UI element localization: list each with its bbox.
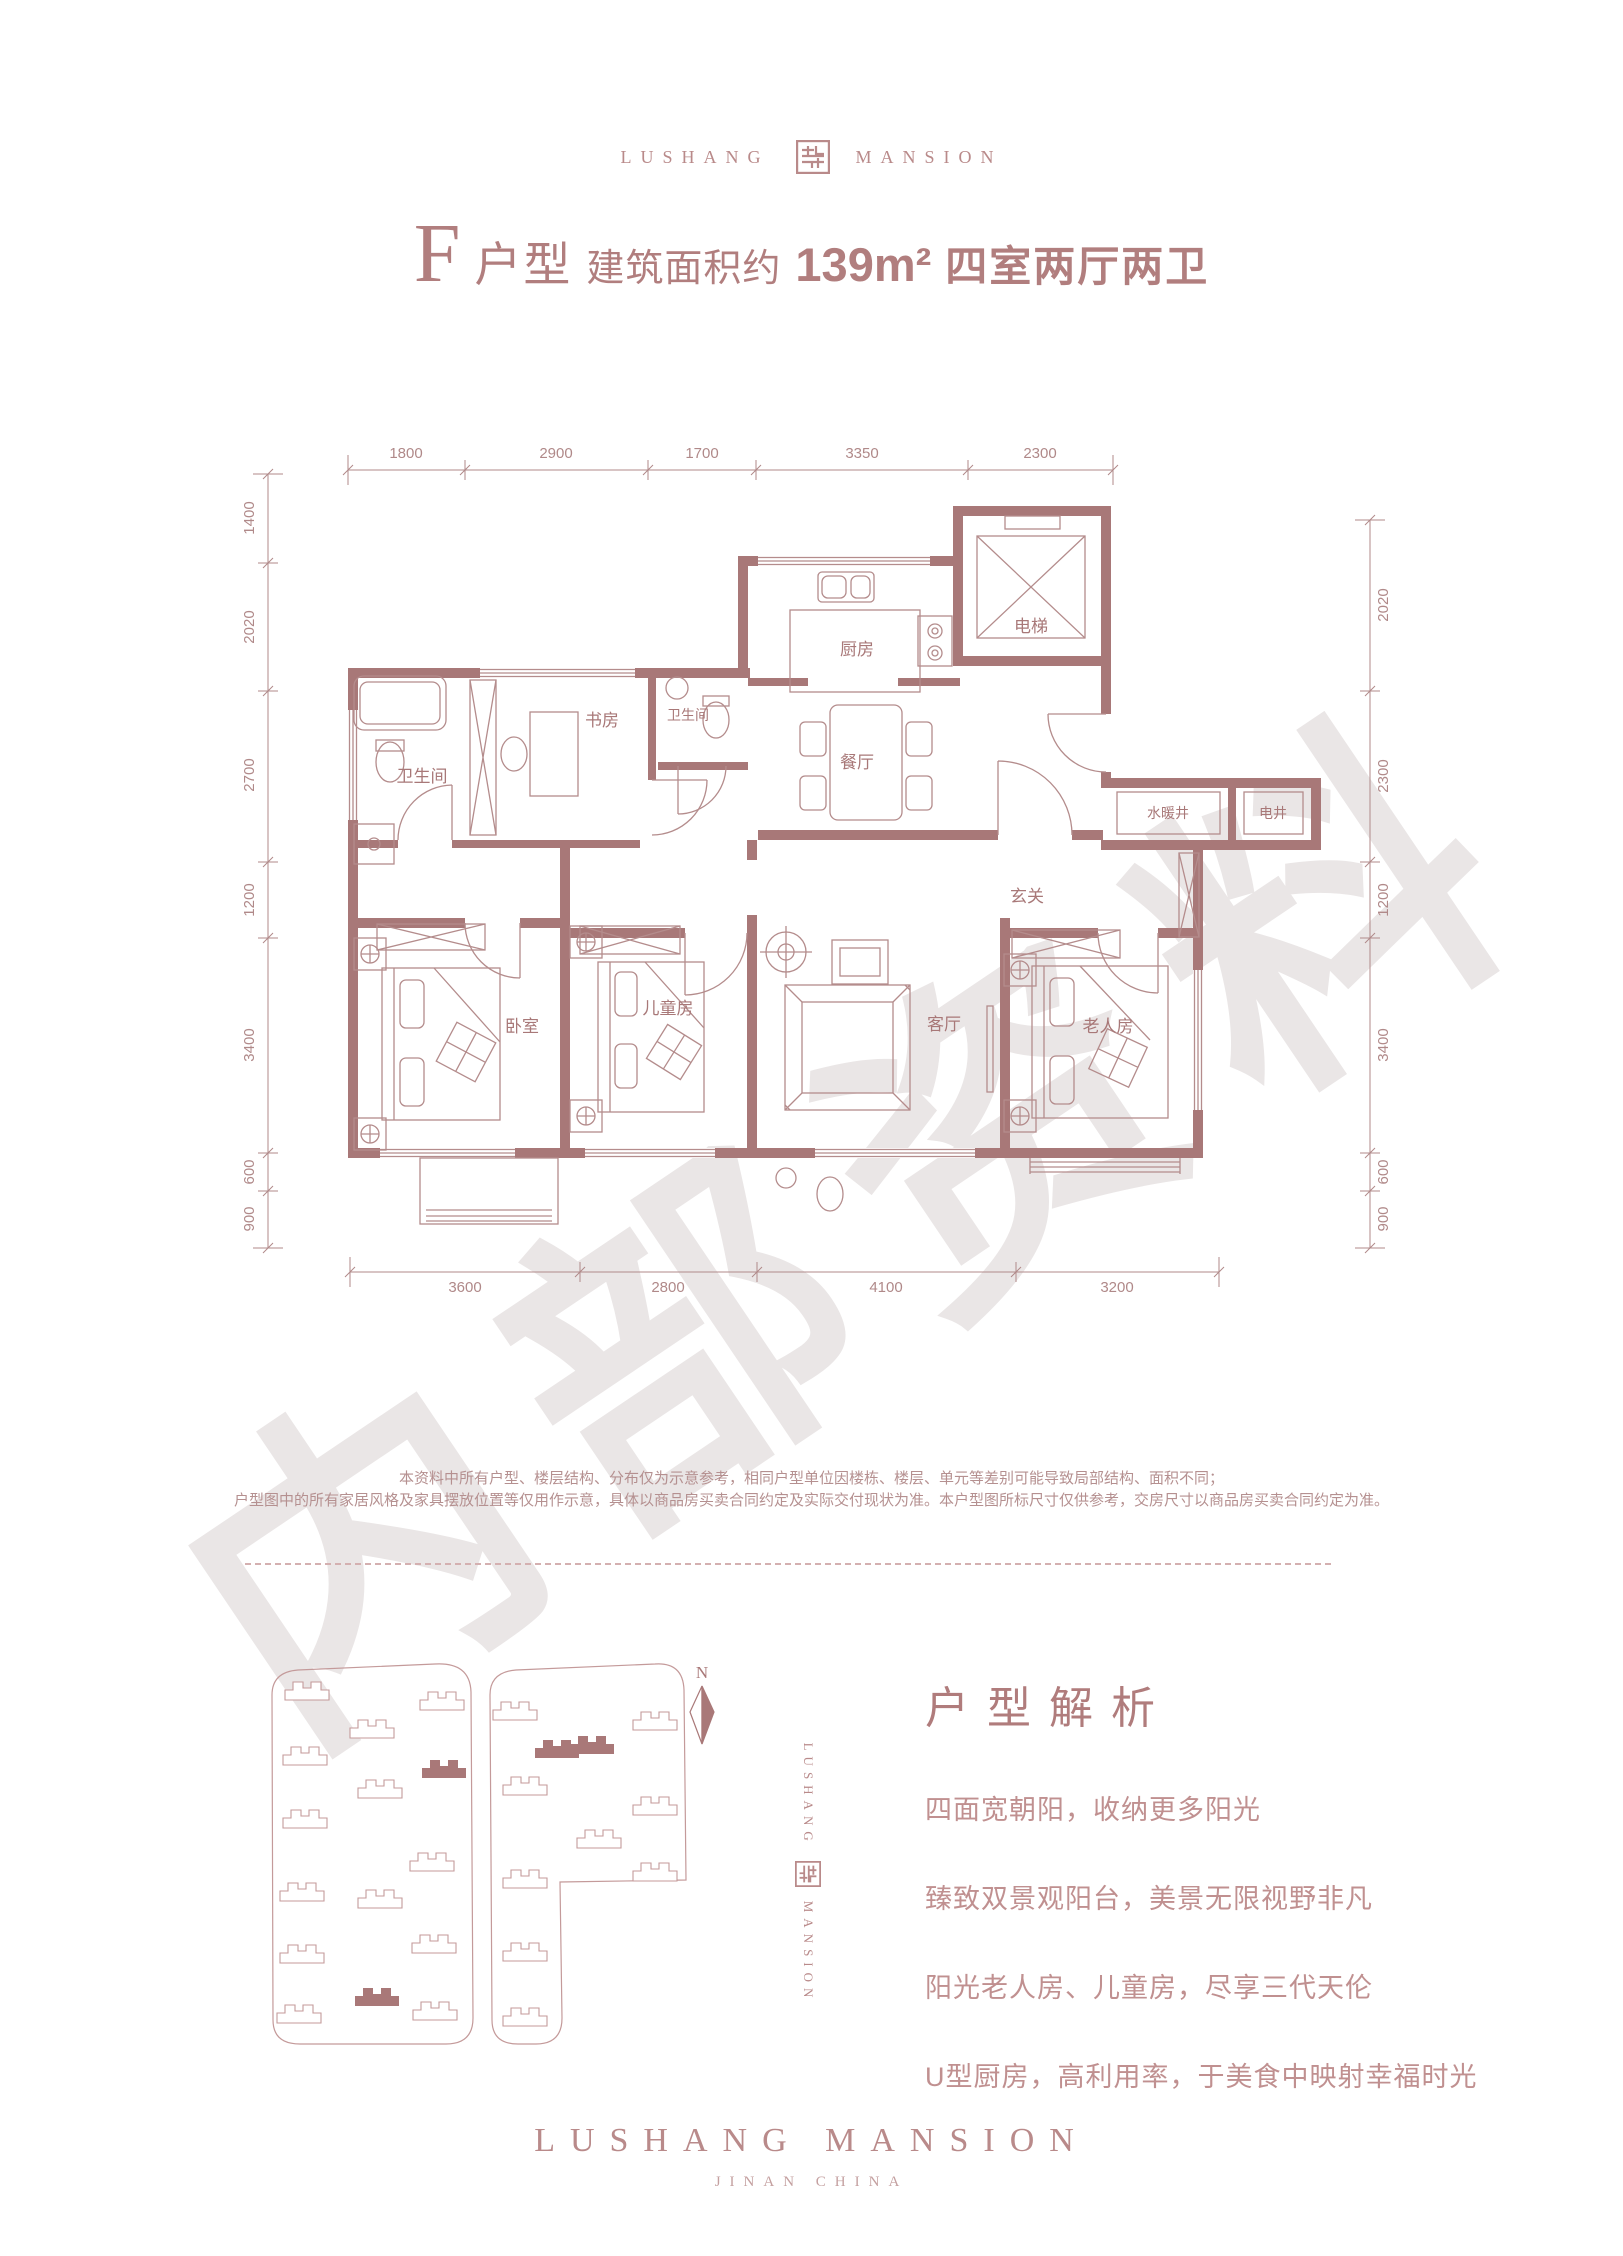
room-label-foyer: 玄关	[1010, 887, 1044, 906]
analysis-point: 四面宽朝阳，收纳更多阳光	[925, 1788, 1565, 1827]
disclaimer-line-1: 本资料中所有户型、楼层结构、分布仅为示意参考，相同户型单位因楼栋、楼层、单元等差…	[0, 1468, 1623, 1490]
dim-label: 3400	[241, 1028, 258, 1061]
room-label-kids: 儿童房	[643, 999, 694, 1018]
area-label: 建筑面积约	[586, 237, 781, 292]
room-label-elder: 老人房	[1083, 1017, 1134, 1036]
dimension-lines: 1800 2900 1700 3350 2300 1400 2020 2700 …	[241, 445, 1392, 1296]
room-label-water-shaft: 水暖井	[1147, 805, 1189, 821]
analysis-point: 臻致双景观阳台，美景无限视野非凡	[925, 1877, 1565, 1916]
page-title: F 户型 建筑面积约 139m² 四室两厅两卫	[0, 212, 1623, 296]
dim-label: 3400	[1375, 1028, 1392, 1061]
vertical-logo-left: LUSHANG	[800, 1743, 816, 1847]
room-label-dining: 餐厅	[840, 753, 874, 772]
dim-label: 600	[241, 1159, 258, 1184]
site-buildings-highlighted	[355, 1736, 614, 2006]
dim-label: 2020	[1375, 588, 1392, 621]
dim-label: 3200	[1100, 1279, 1133, 1296]
compass-icon: N	[690, 1663, 714, 1744]
dim-label: 1800	[389, 445, 422, 462]
unit-type-label: 户型	[474, 226, 572, 295]
room-label-elevator: 电梯	[1014, 617, 1048, 636]
seal-icon	[796, 140, 830, 174]
room-label-bath-a: 卫生间	[397, 767, 448, 786]
dim-label: 1200	[241, 883, 258, 916]
footer-brand-name: LUSHANG MANSION	[0, 2122, 1623, 2160]
dim-label: 4100	[869, 1279, 902, 1296]
room-label-study: 书房	[585, 711, 619, 730]
room-label-kitchen: 厨房	[840, 640, 874, 659]
dim-label: 2700	[241, 758, 258, 791]
header-logo: LUSHANG MANSION	[0, 140, 1623, 174]
analysis-heading: 户型解析	[925, 1672, 1565, 1736]
dim-label: 1400	[241, 501, 258, 534]
dim-label: 3350	[845, 445, 878, 462]
closet-hatches	[377, 680, 1199, 958]
analysis-point: 阳光老人房、儿童房，尽享三代天伦	[925, 1966, 1565, 2005]
dim-label: 2300	[1023, 445, 1056, 462]
site-plan: N	[240, 1650, 740, 2060]
layout-value: 四室两厅两卫	[945, 233, 1209, 294]
room-label-bath-b: 卫生间	[667, 707, 709, 723]
dim-label: 600	[1375, 1159, 1392, 1184]
disclaimer-line-2: 户型图中的所有家居风格及家具摆放位置等仅用作示意，具体以商品房买卖合同约定及实际…	[0, 1490, 1623, 1512]
header-logo-right: MANSION	[856, 147, 1003, 168]
vertical-logo-right: MANSION	[800, 1901, 816, 2004]
dim-label: 2800	[651, 1279, 684, 1296]
unit-letter: F	[414, 212, 461, 296]
footer-location: JINAN CHINA	[0, 2174, 1623, 2191]
room-label-elec-shaft: 电井	[1259, 805, 1287, 821]
room-label-bedroom: 卧室	[505, 1017, 539, 1036]
area-value: 139m²	[795, 237, 931, 292]
site-buildings	[277, 1682, 677, 2026]
footer-logo: LUSHANG MANSION JINAN CHINA	[0, 2122, 1623, 2191]
seal-icon	[795, 1861, 821, 1887]
dim-label: 1700	[685, 445, 718, 462]
floorplan-walls	[348, 506, 1321, 1158]
dim-label: 900	[241, 1206, 258, 1231]
floorplan-drawing: 1800 2900 1700 3350 2300 1400 2020 2700 …	[230, 410, 1410, 1310]
dim-label: 1200	[1375, 883, 1392, 916]
furniture	[354, 572, 1168, 1211]
room-labels: 厨房 电梯 书房 卫生间 卫生间 餐厅 水暖井 电井 玄关 卧室 儿童房 客厅 …	[397, 617, 1288, 1036]
disclaimer: 本资料中所有户型、楼层结构、分布仅为示意参考，相同户型单位因楼栋、楼层、单元等差…	[0, 1468, 1623, 1512]
site-parcels	[272, 1664, 686, 2044]
compass-label: N	[696, 1663, 708, 1682]
dim-label: 2900	[539, 445, 572, 462]
dim-label: 2020	[241, 610, 258, 643]
room-label-living: 客厅	[927, 1015, 961, 1034]
dim-label: 3600	[448, 1279, 481, 1296]
dim-label: 2300	[1375, 759, 1392, 792]
dashed-divider	[245, 1563, 1331, 1565]
header-logo-left: LUSHANG	[620, 147, 769, 168]
dim-label: 900	[1375, 1206, 1392, 1231]
analysis-section: 户型解析 四面宽朝阳，收纳更多阳光 臻致双景观阳台，美景无限视野非凡 阳光老人房…	[925, 1672, 1565, 2144]
flyer-page: 内部资料 LUSHANG MANSION F 户型 建筑面积约 139m² 四室…	[0, 0, 1623, 2256]
analysis-point: U型厨房，高利用率，于美食中映射幸福时光	[925, 2055, 1565, 2094]
